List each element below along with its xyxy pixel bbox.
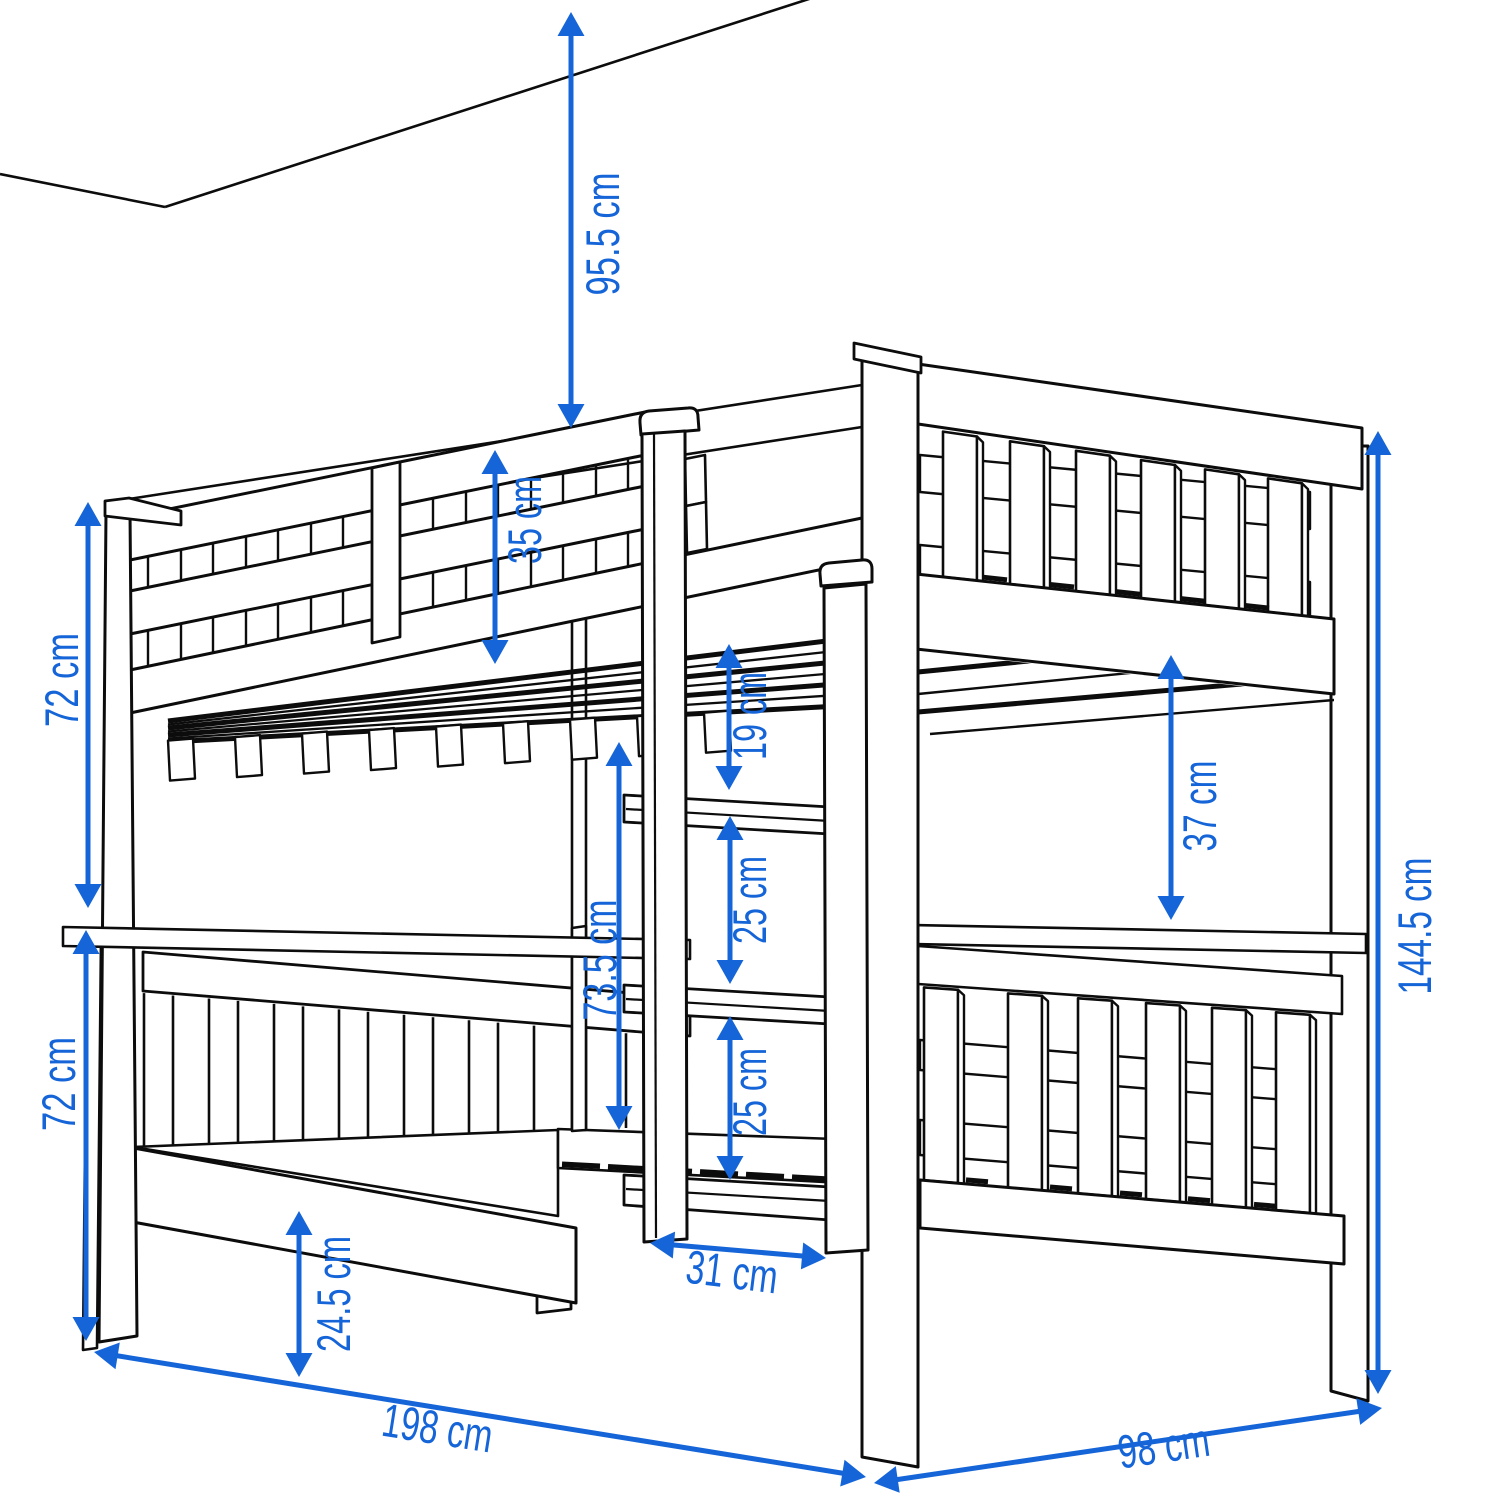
svg-text:19 cm: 19 cm [723, 672, 776, 760]
svg-text:35 cm: 35 cm [498, 476, 551, 564]
svg-text:73.5 cm: 73.5 cm [573, 900, 626, 1021]
svg-text:24.5 cm: 24.5 cm [307, 1236, 360, 1352]
svg-text:72 cm: 72 cm [35, 633, 88, 727]
svg-text:25 cm: 25 cm [723, 1048, 776, 1136]
svg-text:37 cm: 37 cm [1173, 761, 1226, 852]
svg-text:25 cm: 25 cm [723, 856, 776, 944]
svg-text:72 cm: 72 cm [32, 1037, 85, 1131]
svg-text:31 cm: 31 cm [683, 1240, 781, 1304]
svg-text:95.5 cm: 95.5 cm [576, 173, 629, 296]
svg-text:144.5 cm: 144.5 cm [1388, 858, 1441, 995]
